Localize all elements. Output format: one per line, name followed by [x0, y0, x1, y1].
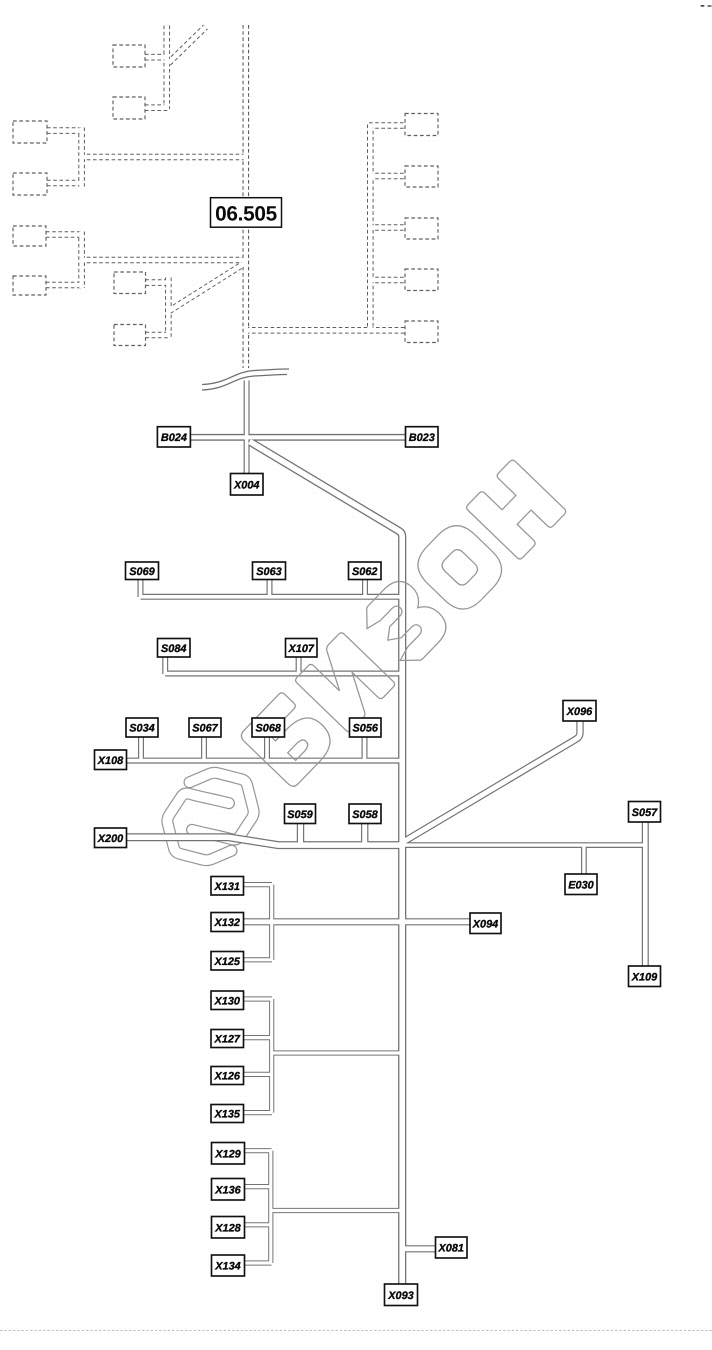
svg-text:X094: X094	[472, 918, 498, 930]
svg-text:X128: X128	[214, 1222, 241, 1234]
svg-text:S057: S057	[632, 807, 658, 819]
svg-text:X125: X125	[214, 956, 241, 968]
svg-text:X130: X130	[214, 995, 240, 1007]
svg-text:S063: S063	[256, 566, 281, 578]
svg-text:X127: X127	[214, 1034, 241, 1046]
svg-text:X132: X132	[214, 917, 240, 929]
svg-text:S067: S067	[192, 723, 218, 735]
svg-text:X129: X129	[214, 1148, 241, 1160]
svg-text:X109: X109	[631, 971, 658, 983]
svg-text:S062: S062	[352, 566, 377, 578]
svg-text:S056: S056	[353, 723, 379, 735]
svg-text:X108: X108	[97, 755, 124, 767]
svg-text:S069: S069	[129, 566, 155, 578]
svg-text:X096: X096	[566, 706, 593, 718]
svg-text:S034: S034	[129, 723, 154, 735]
svg-text:S058: S058	[352, 809, 378, 821]
svg-text:X131: X131	[214, 881, 240, 893]
svg-text:E030: E030	[568, 879, 593, 891]
svg-text:X081: X081	[438, 1243, 464, 1255]
svg-text:X093: X093	[387, 1290, 413, 1302]
svg-text:X200: X200	[97, 833, 123, 845]
svg-text:S068: S068	[256, 723, 282, 735]
svg-text:X135: X135	[214, 1109, 241, 1121]
svg-text:X134: X134	[214, 1261, 240, 1273]
svg-text:S084: S084	[161, 643, 186, 655]
svg-text:B023: B023	[409, 432, 435, 444]
svg-text:X004: X004	[233, 479, 259, 491]
svg-text:X107: X107	[288, 643, 315, 655]
svg-text:S059: S059	[287, 809, 313, 821]
svg-text:B024: B024	[161, 432, 187, 444]
svg-text:X136: X136	[214, 1184, 241, 1196]
svg-text:06.505: 06.505	[215, 203, 277, 226]
svg-text:X126: X126	[214, 1071, 241, 1083]
